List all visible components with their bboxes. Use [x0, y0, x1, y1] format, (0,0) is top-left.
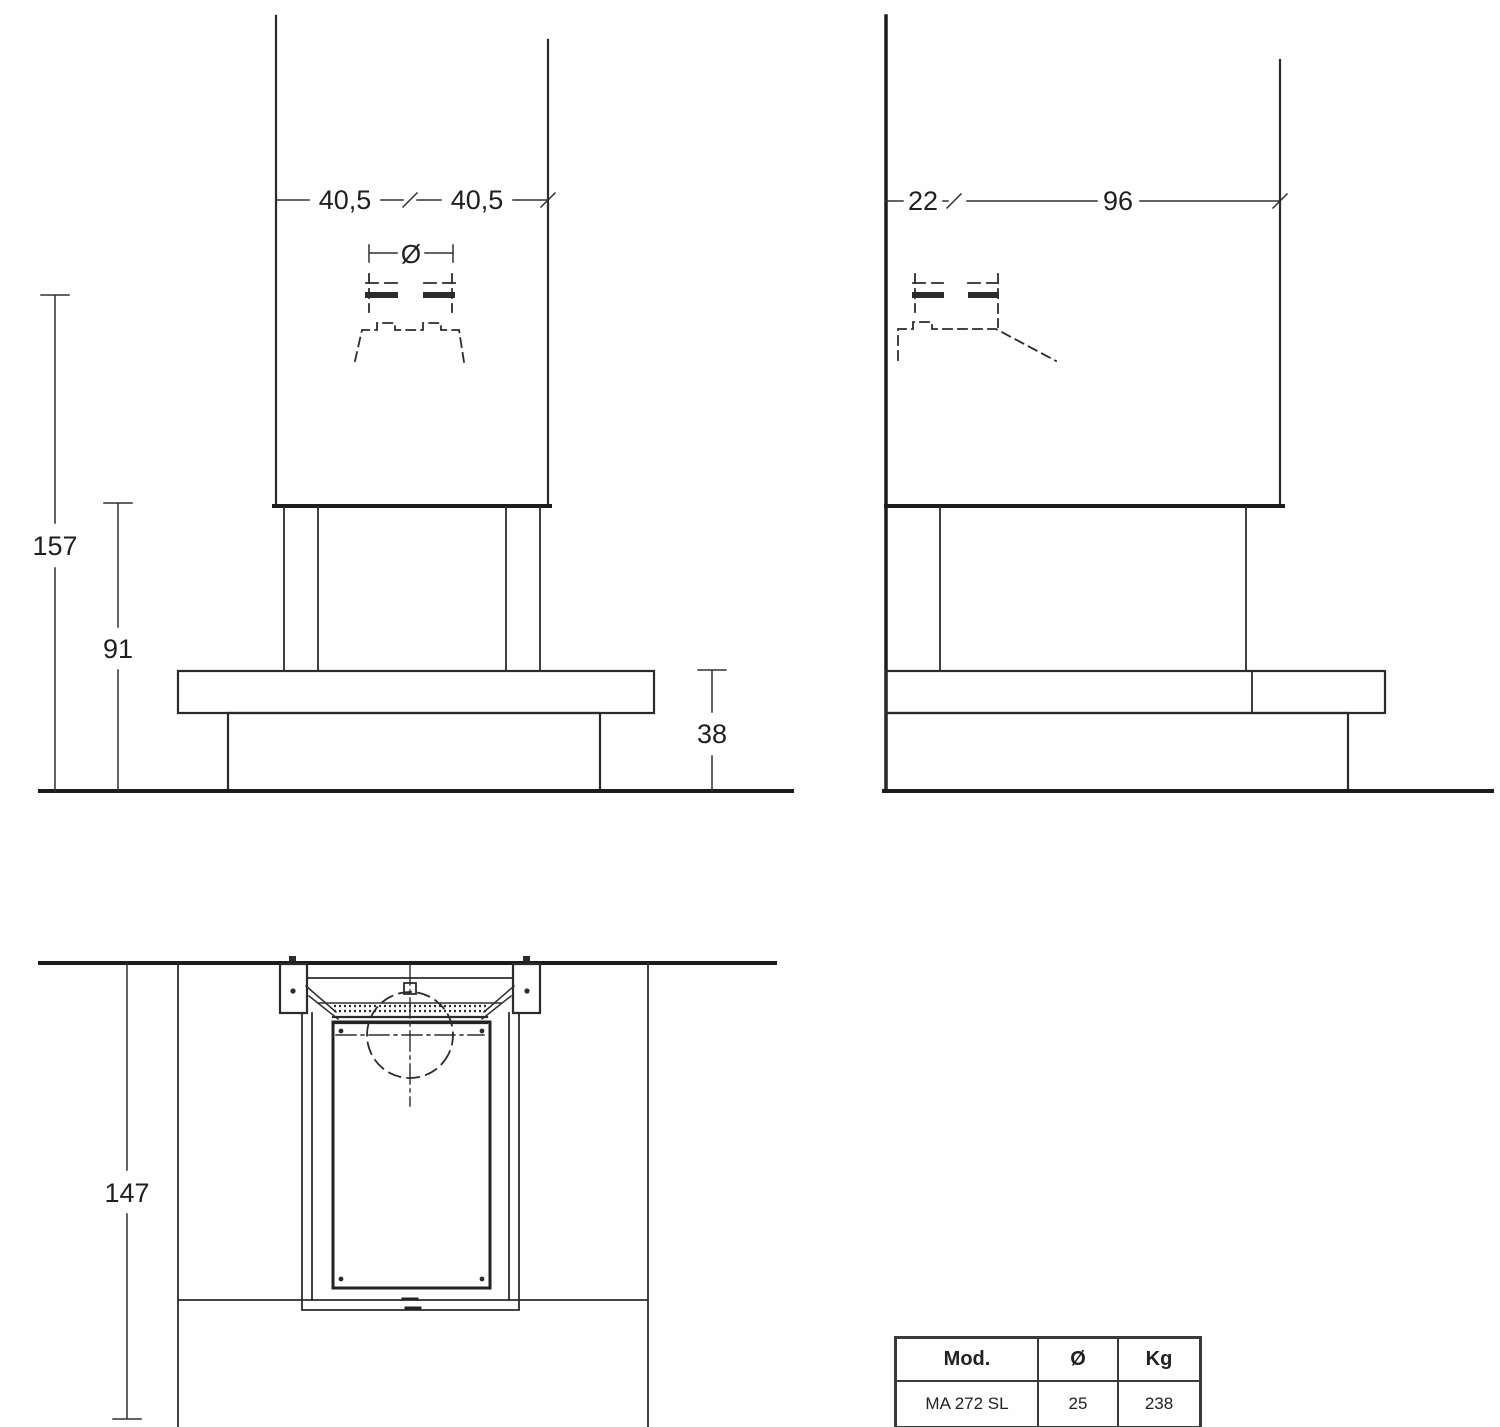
fireplace-drawing-canvas: 40,5 40,5 Ø 157 91 38 — [0, 0, 1500, 1427]
side-depth-label: 96 — [1103, 186, 1133, 216]
front-total-height-label: 157 — [32, 531, 77, 561]
spec-header-diameter: Ø — [1038, 1338, 1118, 1382]
front-flue-diameter-symbol: Ø — [401, 239, 421, 269]
front-elevation-view: 40,5 40,5 Ø 157 91 38 — [32, 16, 792, 791]
front-base-block — [228, 713, 600, 791]
side-wall-offset-label: 22 — [908, 186, 938, 216]
technical-drawing-page: 40,5 40,5 Ø 157 91 38 — [0, 0, 1500, 1427]
front-dim-left-label: 40,5 — [319, 185, 372, 215]
front-width-dimension: 40,5 40,5 — [276, 185, 555, 215]
side-elevation-view: 22 96 — [884, 16, 1492, 791]
front-dim-right-label: 40,5 — [451, 185, 504, 215]
side-flue-outlet-detail — [898, 274, 1056, 361]
spec-value-model: MA 272 SL — [896, 1381, 1039, 1427]
side-bench-slab — [886, 671, 1385, 713]
plan-view: 147 — [40, 956, 775, 1427]
plan-depth-label: 147 — [104, 1178, 149, 1208]
front-flue-outlet-detail — [355, 274, 464, 362]
front-total-height-dimension: 157 — [32, 295, 77, 791]
spec-table-header-row: Mod. Ø Kg — [896, 1338, 1201, 1382]
plan-depth-dimension: 147 — [104, 963, 149, 1419]
spec-table: Mod. Ø Kg MA 272 SL 25 238 — [894, 1336, 1202, 1427]
front-bench-slab — [178, 671, 654, 713]
front-flue-diameter-dimension: Ø — [369, 239, 453, 269]
front-legs — [284, 507, 540, 671]
side-depth-dimension: 22 96 — [886, 186, 1287, 216]
spec-value-weight: 238 — [1118, 1381, 1201, 1427]
plan-room-outline — [178, 963, 648, 1427]
spec-header-weight: Kg — [1118, 1338, 1201, 1382]
plan-centerlines — [336, 965, 484, 1106]
front-bench-height-label: 38 — [697, 719, 727, 749]
side-base-block — [886, 713, 1348, 791]
front-hood-height-dimension: 91 — [103, 503, 133, 791]
front-bench-height-dimension: 38 — [697, 670, 727, 791]
front-hood-height-label: 91 — [103, 634, 133, 664]
spec-header-model: Mod. — [896, 1338, 1039, 1382]
spec-table-data-row: MA 272 SL 25 238 — [896, 1381, 1201, 1427]
side-firebox — [886, 507, 1246, 671]
spec-value-diameter: 25 — [1038, 1381, 1118, 1427]
